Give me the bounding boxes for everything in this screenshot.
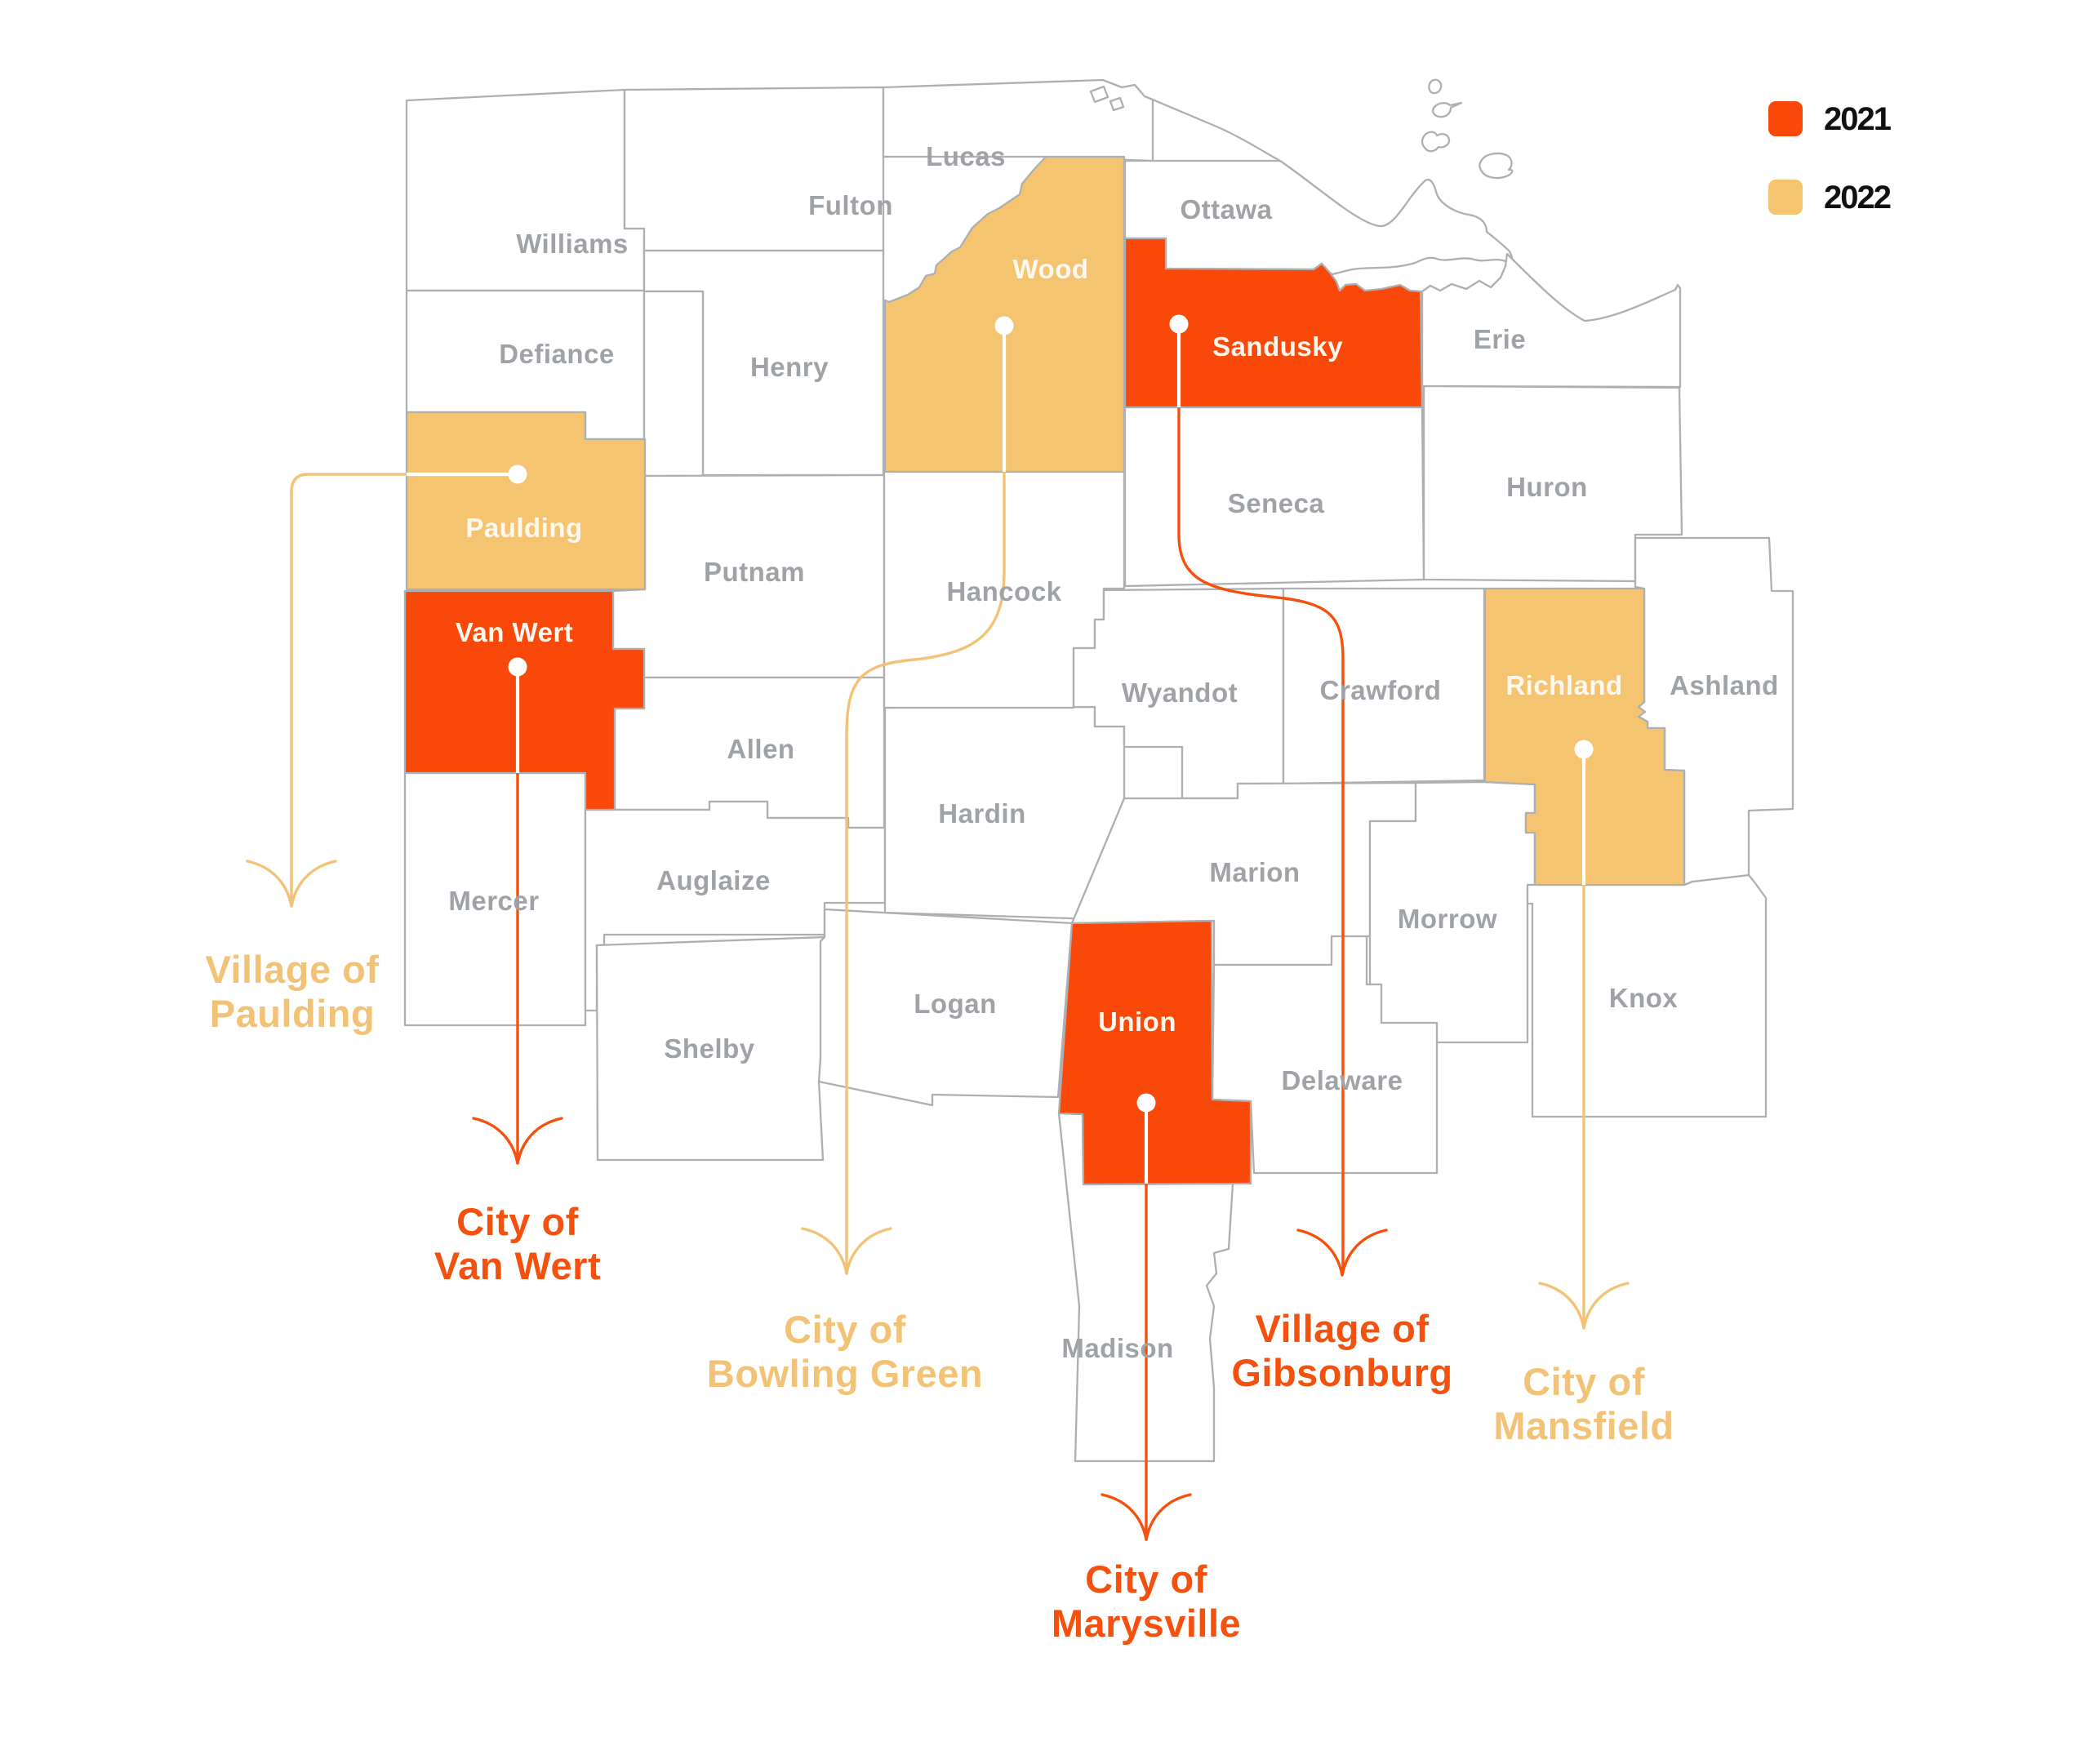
svg-text:Van Wert: Van Wert	[434, 1244, 601, 1287]
svg-text:Putnam: Putnam	[704, 557, 805, 587]
svg-text:Henry: Henry	[750, 352, 829, 382]
svg-text:Paulding: Paulding	[465, 513, 582, 543]
svg-text:Shelby: Shelby	[664, 1033, 754, 1064]
svg-text:Defiance: Defiance	[499, 339, 615, 369]
svg-text:Hancock: Hancock	[946, 576, 1061, 607]
svg-text:Logan: Logan	[914, 989, 996, 1019]
svg-text:Bowling Green: Bowling Green	[707, 1352, 983, 1395]
svg-text:Ashland: Ashland	[1670, 670, 1779, 700]
svg-text:Mansfield: Mansfield	[1493, 1404, 1674, 1447]
svg-text:Wyandot: Wyandot	[1122, 678, 1238, 708]
svg-text:Gibsonburg: Gibsonburg	[1231, 1351, 1452, 1394]
svg-text:Knox: Knox	[1609, 983, 1679, 1013]
svg-text:Crawford: Crawford	[1320, 675, 1442, 705]
svg-text:Village of: Village of	[1255, 1307, 1429, 1350]
svg-text:Paulding: Paulding	[210, 992, 375, 1035]
svg-text:Hardin: Hardin	[938, 798, 1026, 829]
svg-text:2021: 2021	[1824, 101, 1892, 137]
svg-text:Allen: Allen	[727, 734, 794, 764]
svg-text:Marysville: Marysville	[1052, 1602, 1241, 1645]
svg-text:Williams: Williams	[516, 229, 629, 259]
svg-text:2022: 2022	[1824, 180, 1891, 216]
svg-text:City of: City of	[784, 1308, 906, 1351]
svg-text:City of: City of	[456, 1200, 579, 1243]
svg-text:Wood: Wood	[1012, 254, 1088, 284]
svg-text:Auglaize: Auglaize	[656, 865, 771, 895]
svg-text:Delaware: Delaware	[1282, 1065, 1403, 1095]
svg-text:Van Wert: Van Wert	[456, 617, 574, 647]
svg-text:City of: City of	[1085, 1557, 1207, 1601]
svg-text:Fulton: Fulton	[808, 190, 893, 220]
svg-text:Ottawa: Ottawa	[1180, 194, 1272, 224]
svg-text:Madison: Madison	[1061, 1333, 1173, 1363]
svg-text:City of: City of	[1523, 1360, 1645, 1403]
svg-text:Erie: Erie	[1474, 324, 1526, 354]
svg-text:Sandusky: Sandusky	[1212, 331, 1343, 362]
svg-text:Mercer: Mercer	[448, 886, 539, 916]
svg-text:Marion: Marion	[1209, 857, 1300, 887]
svg-text:Huron: Huron	[1506, 472, 1588, 502]
svg-text:Union: Union	[1098, 1006, 1176, 1037]
svg-text:Lucas: Lucas	[926, 141, 1006, 171]
svg-text:Morrow: Morrow	[1398, 904, 1497, 934]
svg-text:Village of: Village of	[205, 948, 379, 991]
svg-text:Richland: Richland	[1505, 670, 1622, 700]
svg-text:Seneca: Seneca	[1228, 488, 1325, 518]
